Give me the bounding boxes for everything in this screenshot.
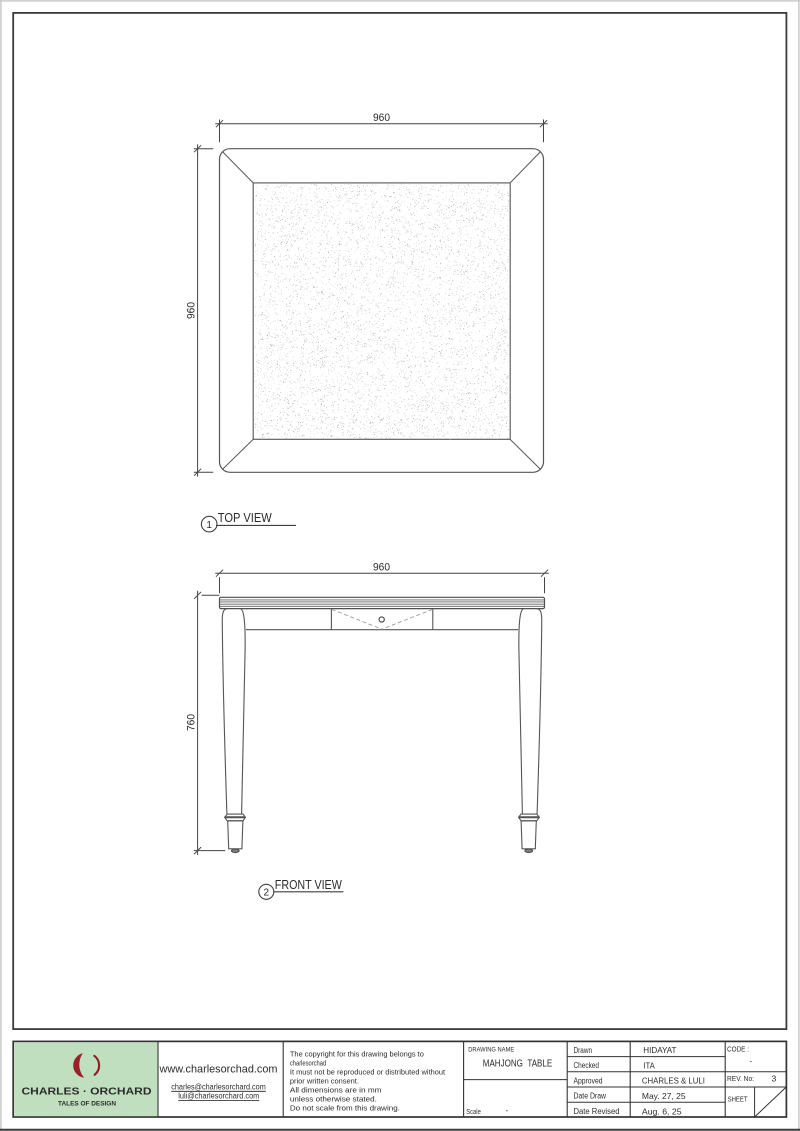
svg-text:The copyright for this drawing: The copyright for this drawing belongs t… [290, 1050, 424, 1059]
svg-text:CODE :: CODE : [727, 1047, 749, 1054]
svg-text:Do not scale from this drawing: Do not scale from this drawing. [290, 1104, 400, 1113]
svg-text:Checked: Checked [574, 1061, 600, 1070]
svg-text:2: 2 [264, 887, 270, 898]
svg-text:960: 960 [373, 112, 390, 124]
svg-text:All dimensions are in mm: All dimensions are in mm [290, 1086, 382, 1095]
svg-text:luli@charlesorchard.com: luli@charlesorchard.com [178, 1092, 259, 1101]
svg-text:Date Revised: Date Revised [574, 1107, 620, 1116]
svg-text:TALES OF DESIGN: TALES OF DESIGN [58, 1102, 116, 1108]
svg-text:DRAWING NAME: DRAWING NAME [468, 1047, 515, 1054]
svg-text:760: 760 [186, 714, 198, 731]
svg-text:CHARLES & LULI: CHARLES & LULI [642, 1076, 705, 1086]
svg-text:1: 1 [206, 520, 212, 531]
svg-text:CHARLES · ORCHARD: CHARLES · ORCHARD [22, 1086, 152, 1097]
svg-text:May. 27, 25: May. 27, 25 [642, 1091, 686, 1101]
svg-text:-: - [506, 1106, 509, 1115]
svg-text:HIDAYAT: HIDAYAT [643, 1045, 677, 1055]
svg-text:960: 960 [373, 562, 390, 574]
svg-text:-: - [750, 1057, 753, 1066]
svg-text:It must not be reproduced or d: It must not be reproduced or distributed… [290, 1068, 446, 1077]
svg-text:REV. No:: REV. No: [727, 1076, 754, 1083]
svg-text:TOP VIEW: TOP VIEW [218, 510, 273, 525]
svg-text:3: 3 [772, 1074, 777, 1084]
svg-text:prior written consent.: prior written consent. [290, 1077, 359, 1086]
svg-text:charles@charlesorchard.com: charles@charlesorchard.com [171, 1082, 266, 1091]
svg-text:Date Draw: Date Draw [574, 1092, 607, 1101]
svg-text:Approved: Approved [574, 1076, 603, 1085]
svg-text:Drawn: Drawn [574, 1046, 593, 1055]
svg-text:Aug. 6, 25: Aug. 6, 25 [642, 1106, 682, 1116]
svg-text:MAHJONG TABLE: MAHJONG TABLE [483, 1059, 553, 1070]
svg-text:charlesorchad: charlesorchad [290, 1059, 326, 1068]
svg-text:SHEET: SHEET [728, 1097, 749, 1104]
svg-text:960: 960 [186, 302, 198, 319]
svg-text:ITA: ITA [643, 1061, 655, 1071]
svg-text:Scale: Scale [466, 1107, 481, 1116]
svg-text:FRONT VIEW: FRONT VIEW [275, 877, 343, 892]
svg-text:unless otherwise stated.: unless otherwise stated. [290, 1095, 377, 1104]
svg-text:www.charlesorchad.com: www.charlesorchad.com [159, 1064, 278, 1076]
